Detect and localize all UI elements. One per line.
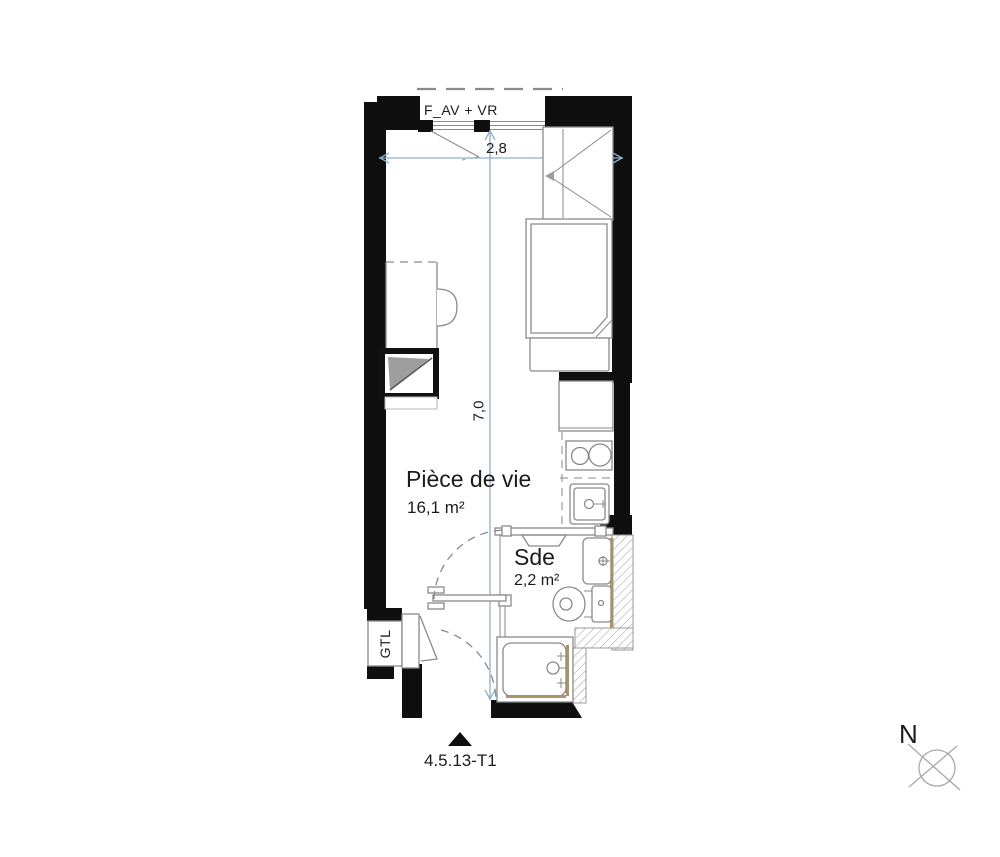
cooktop (566, 441, 612, 470)
window-label: F_AV + VR (424, 102, 498, 118)
window-bay (418, 120, 545, 160)
floor-plan-drawing (0, 0, 1000, 857)
duct-base (385, 397, 437, 409)
desk-chair (437, 289, 457, 326)
dimension-depth-label: 7,0 (471, 401, 488, 422)
toilet (553, 586, 611, 622)
washbasin (583, 538, 611, 584)
desk (386, 262, 437, 349)
bed (526, 219, 612, 338)
shower (497, 637, 573, 702)
unit-ref-label: 4.5.13-T1 (424, 751, 497, 771)
north-label: N (899, 719, 918, 750)
bathroom-name: Sde (514, 544, 555, 571)
wardrobe (543, 127, 613, 220)
gtl-label: GTL (377, 630, 393, 659)
entry-marker-icon (448, 732, 472, 746)
north-arrow-icon (908, 744, 960, 790)
floor-plan: F_AV + VR 2,8 7,0 Pièce de vie 16,1 m² S… (0, 0, 1000, 857)
entrance-door-leaf (420, 616, 437, 661)
dimension-width-label: 2,8 (486, 140, 507, 157)
duct-shaft (382, 351, 436, 396)
kitchen-sink (570, 484, 609, 524)
living-room-name: Pièce de vie (406, 466, 531, 493)
bathroom-area: 2,2 m² (514, 572, 559, 590)
gtl-cabinet (368, 614, 419, 668)
bathroom-door (428, 587, 506, 609)
bed-footer (530, 338, 609, 371)
entrance-door-swing (441, 630, 496, 702)
living-room-area: 16,1 m² (407, 498, 465, 518)
